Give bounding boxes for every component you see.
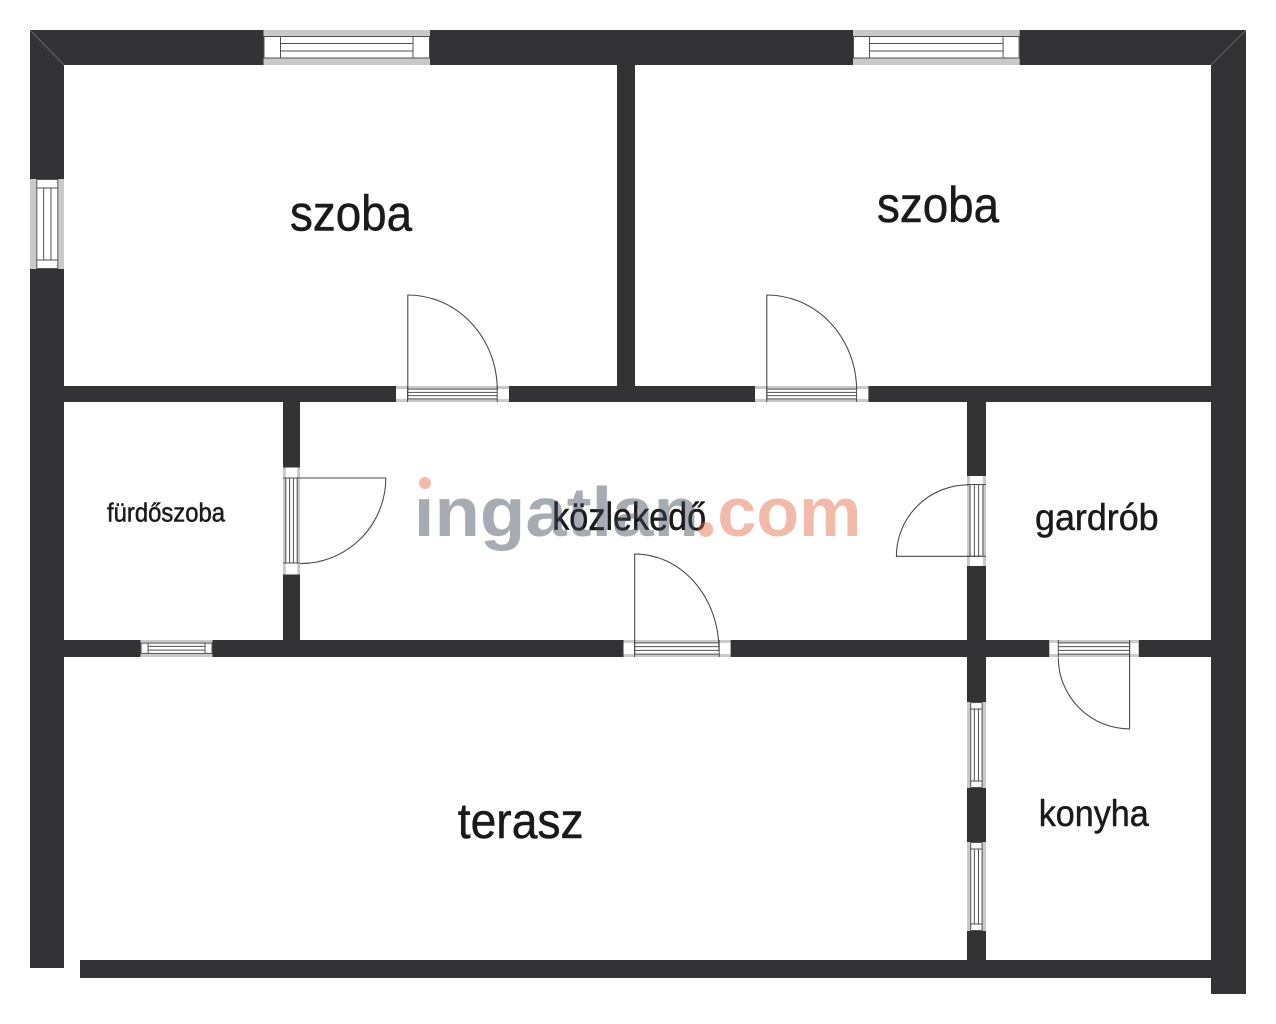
- svg-text:szoba: szoba: [290, 187, 412, 242]
- svg-text:ıngatlan: ıngatlan: [414, 474, 699, 552]
- svg-text:gardrób: gardrób: [1035, 497, 1159, 539]
- svg-text:com: com: [717, 473, 861, 551]
- svg-text:fürdőszoba: fürdőszoba: [107, 499, 225, 528]
- svg-text:szoba: szoba: [877, 178, 999, 233]
- svg-text:konyha: konyha: [1039, 793, 1149, 835]
- svg-text:terasz: terasz: [458, 793, 584, 849]
